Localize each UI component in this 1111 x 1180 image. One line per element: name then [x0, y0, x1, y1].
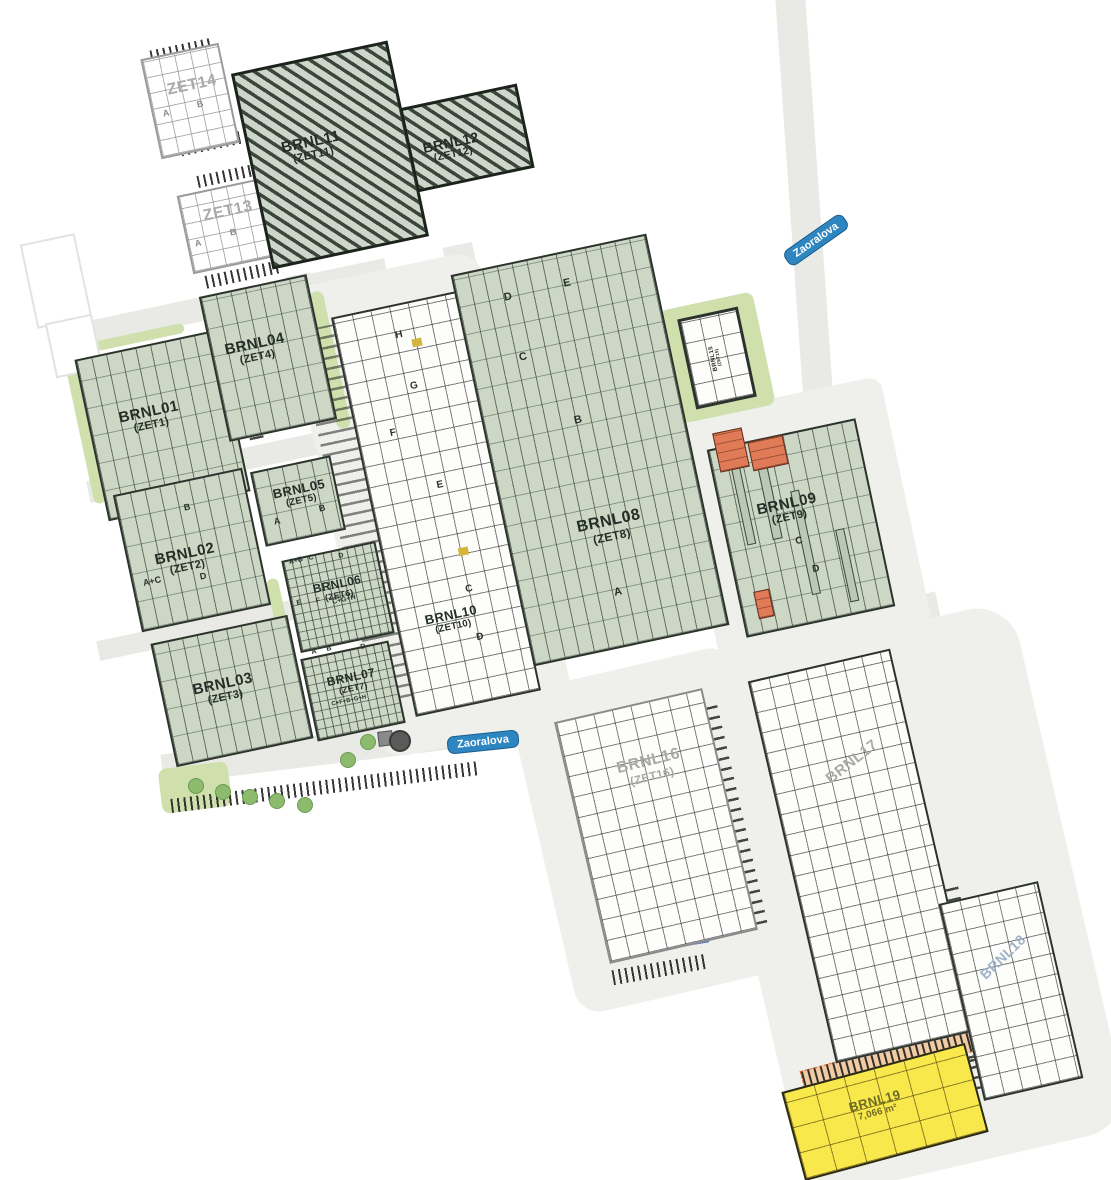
unit-label: B	[318, 502, 326, 513]
tree	[340, 752, 356, 768]
unit-label: G	[409, 380, 419, 392]
site-plan: ZET14 A B ZET13 A B BRNL11(ZET11) BRNL12…	[0, 0, 1111, 1180]
unit-label: A	[194, 237, 202, 248]
tree	[188, 778, 204, 794]
yellow-marker	[411, 338, 422, 348]
unit-label: B	[229, 226, 237, 237]
unit-label: E	[296, 599, 302, 607]
unit-label: A	[273, 515, 281, 526]
yellow-marker	[458, 547, 469, 557]
unit-label: D	[199, 570, 207, 581]
tree	[215, 784, 231, 800]
unit-label: A	[162, 107, 170, 118]
mezzanine	[835, 528, 859, 602]
neighbour-outline	[20, 233, 93, 329]
tree	[297, 797, 313, 813]
unit-label: B	[183, 501, 191, 512]
tree	[242, 789, 258, 805]
tree	[269, 793, 285, 809]
tank-circle	[389, 730, 411, 752]
tree	[360, 734, 376, 750]
mezzanine	[730, 460, 757, 545]
building-zet14[interactable]	[140, 43, 239, 159]
unit-label: B	[196, 98, 204, 109]
